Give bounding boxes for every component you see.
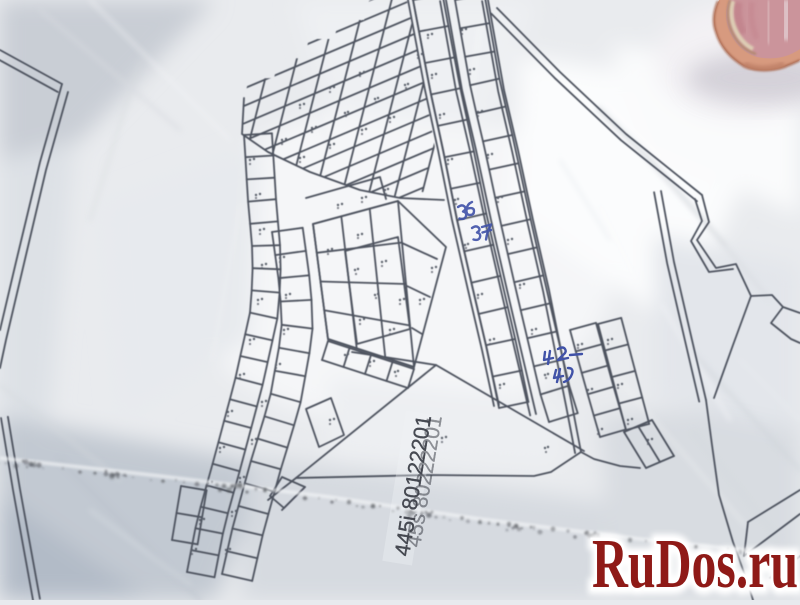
svg-text:RuDos.ru: RuDos.ru <box>592 526 798 600</box>
